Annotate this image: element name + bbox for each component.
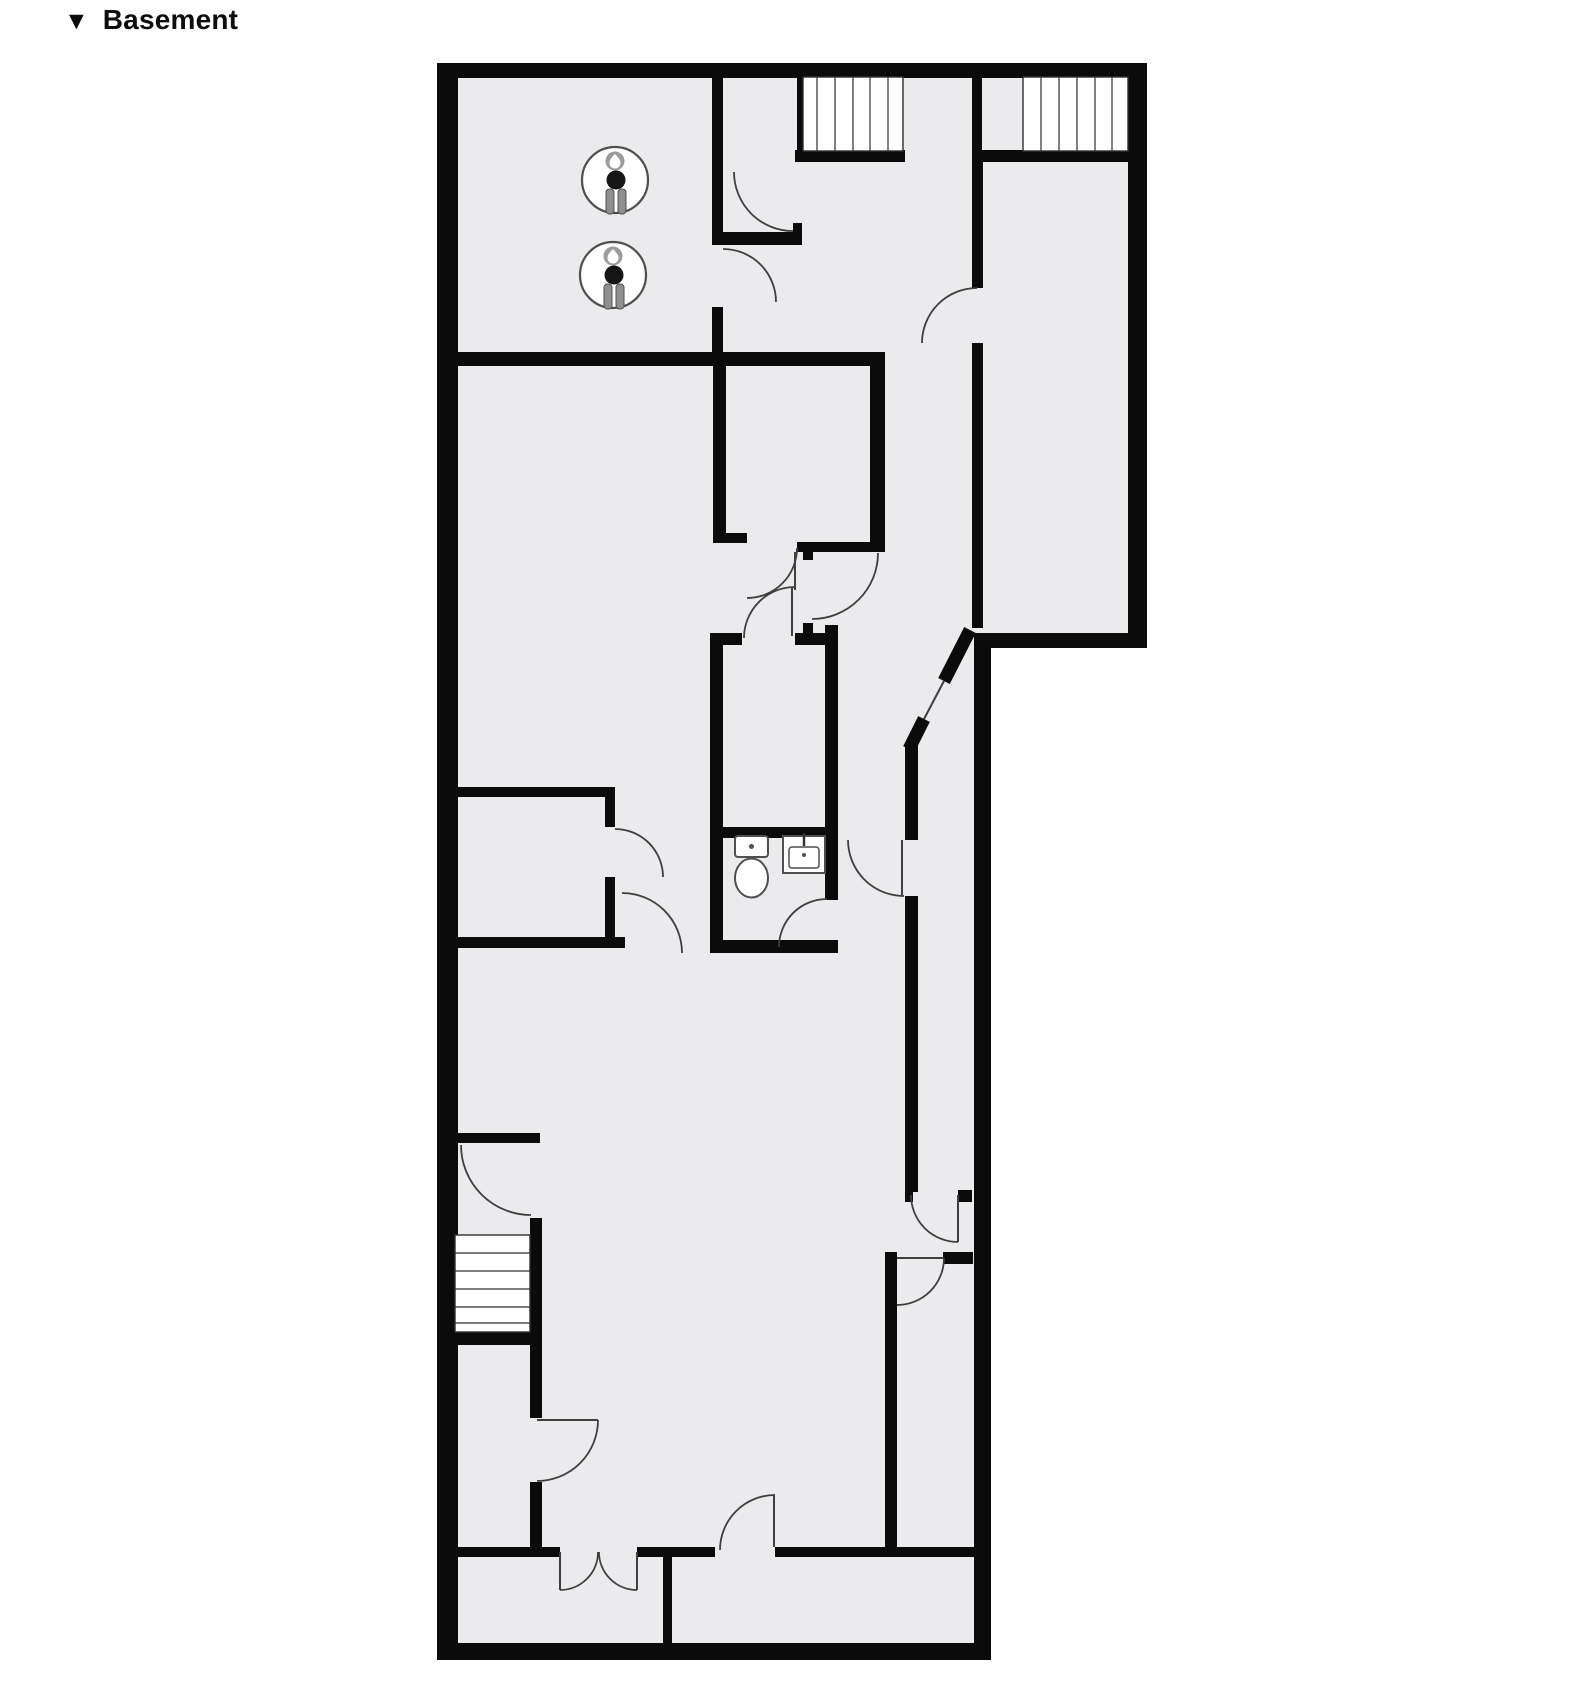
- wall-a-lower: [712, 307, 723, 353]
- floorplan-canvas: [0, 0, 1583, 1694]
- outer-wall-bottom: [437, 1643, 991, 1660]
- bottomrow-wall-b: [637, 1547, 715, 1557]
- smallroom-bottom-left: [713, 533, 747, 543]
- water-heater-icon-2: [580, 242, 646, 309]
- wall-a-upper: [712, 77, 723, 245]
- leftroom-bottom-wall: [457, 937, 625, 948]
- leftroom-right-wall-a: [605, 797, 615, 827]
- smallroom-left-wall: [713, 366, 726, 543]
- toilet-bowl: [735, 859, 768, 898]
- outer-wall-top: [437, 63, 1147, 78]
- wall-e-lower: [530, 1482, 542, 1547]
- wall-h1: [455, 352, 885, 366]
- staircase-mid-left: [455, 1235, 530, 1332]
- wall-e-upper: [530, 1218, 542, 1418]
- wall-b-mid: [972, 160, 983, 288]
- bath-left-wall: [710, 633, 723, 953]
- floorplan-svg: [0, 0, 1583, 1689]
- heater-head: [605, 266, 624, 285]
- outer-wall-ext-bottom: [983, 633, 1147, 648]
- heater-head: [607, 171, 626, 190]
- closet-hinge-nub: [803, 623, 813, 633]
- staircase-top-left: [803, 77, 903, 151]
- bottomrow-wall-c: [775, 1547, 974, 1557]
- staircase-mid-left-treads: [455, 1235, 530, 1332]
- bottomrow-wall-a: [453, 1547, 560, 1557]
- junction-nub-right: [958, 1190, 972, 1202]
- toilet-flush-dot: [749, 844, 754, 849]
- wall-d: [885, 1252, 897, 1547]
- vestibule-nub: [793, 223, 802, 232]
- heater-body-right: [618, 189, 626, 214]
- heater-body-left: [606, 189, 614, 214]
- water-heater-icon-1: [582, 147, 648, 214]
- wall-b-low: [972, 343, 983, 628]
- stairs3-top-nub: [453, 1133, 540, 1143]
- outer-wall-right: [974, 633, 991, 1660]
- bottomrow-divider: [663, 1557, 672, 1643]
- smallroom-right-wall: [870, 366, 885, 552]
- chase-wall-lower: [905, 896, 918, 1192]
- stairs3-bottom-bar: [453, 1332, 540, 1345]
- junction2-nub: [943, 1252, 973, 1264]
- smallroom-bottom-right: [797, 542, 885, 552]
- sink-icon: [783, 833, 825, 873]
- sink-drain-dot: [802, 853, 806, 857]
- bath-right-wall: [825, 625, 838, 900]
- smallroom-hinge-nub: [803, 552, 813, 560]
- staircase-top-right: [1023, 77, 1128, 151]
- stair1-landing-wall: [795, 150, 905, 162]
- heater-body-left: [604, 284, 612, 309]
- leftroom-top-wall: [457, 787, 615, 797]
- wall-b-top: [972, 77, 982, 157]
- outer-wall-left: [437, 63, 458, 1660]
- bath-bottom-wall: [710, 940, 838, 953]
- stair2-landing-wall: [972, 150, 1128, 162]
- heater-body-right: [616, 284, 624, 309]
- toilet-icon: [735, 836, 768, 898]
- vestibule-bottom-wall: [712, 232, 802, 245]
- leftroom-right-wall-b: [605, 877, 615, 937]
- chase-wall-upper: [905, 745, 918, 840]
- outer-wall-ext-right: [1128, 63, 1147, 648]
